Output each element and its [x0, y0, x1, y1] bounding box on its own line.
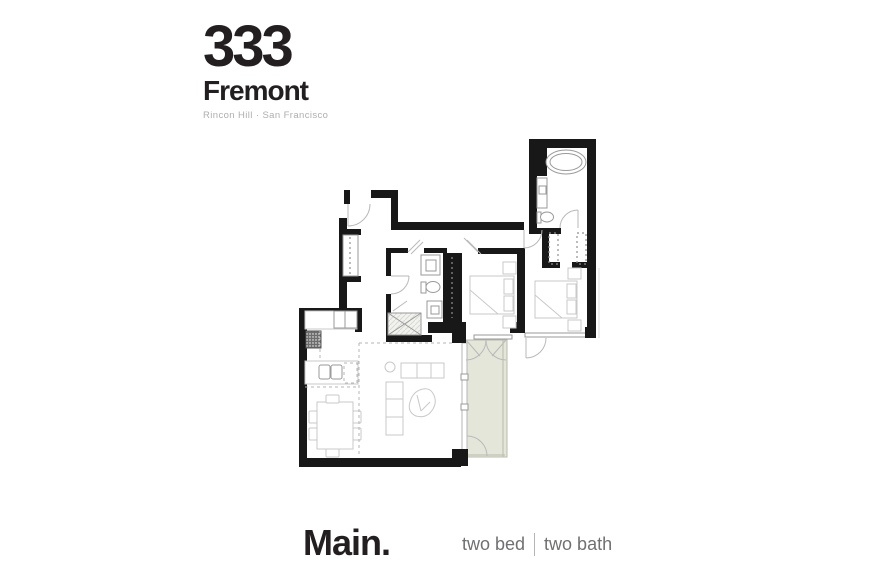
plan-name: Main. [303, 522, 390, 564]
bed [535, 281, 577, 318]
chair [353, 411, 361, 423]
nightstand [568, 268, 581, 279]
chair [353, 428, 361, 440]
shower [388, 301, 421, 335]
living-area [359, 343, 455, 457]
chair [309, 428, 317, 440]
bed-count-label: two bed [462, 534, 525, 555]
chair [309, 411, 317, 423]
walk-in-closet [549, 233, 586, 264]
bathtub [546, 150, 586, 174]
bed [470, 276, 514, 314]
side-table [385, 362, 395, 372]
master-bedroom [535, 268, 581, 331]
nightstand [503, 316, 516, 328]
nightstand [568, 320, 581, 331]
dining-area [309, 395, 361, 457]
second-vanity-sink [427, 301, 442, 318]
entry-closet [343, 235, 358, 276]
vanity-sink [421, 255, 440, 275]
floor-plan-drawing [0, 0, 870, 580]
kitchen-sink [319, 365, 342, 379]
dining-table [317, 402, 353, 449]
master-bedroom-door-arc [526, 338, 546, 358]
toilet [421, 282, 440, 294]
spec-divider [534, 533, 535, 556]
bathroom-door [560, 210, 578, 228]
chair [326, 449, 339, 457]
toilet [537, 212, 554, 223]
vanity-sink [537, 178, 547, 208]
chair [326, 395, 339, 403]
bath-count-label: two bath [544, 534, 612, 555]
media-console [386, 382, 403, 435]
lounge-chair [409, 389, 435, 417]
entry-door [348, 204, 370, 226]
nightstand [503, 262, 516, 274]
sofa [401, 363, 444, 378]
kitchen [305, 311, 358, 387]
plan-specs: two bed two bath [462, 533, 612, 556]
balcony [461, 340, 507, 457]
range [306, 331, 321, 348]
hall-bathroom [388, 240, 442, 335]
